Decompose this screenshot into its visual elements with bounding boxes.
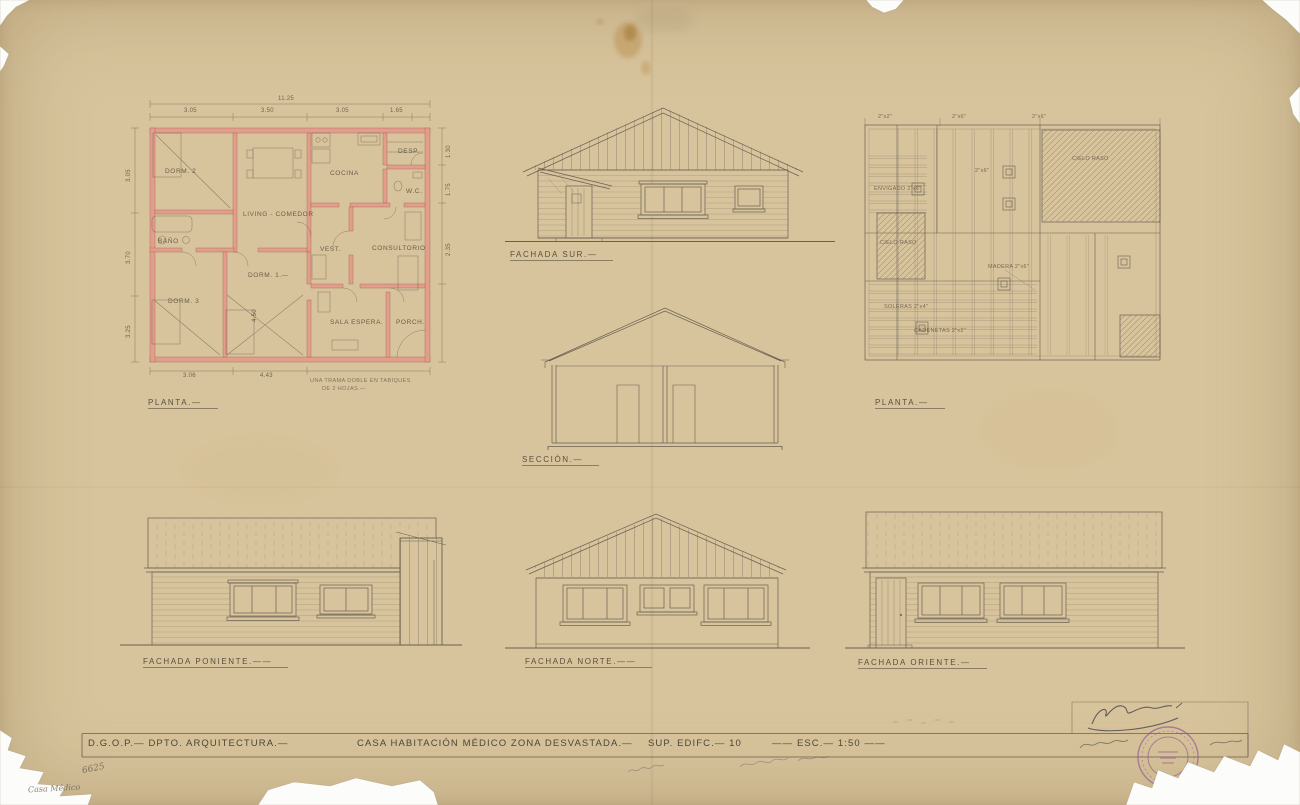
dim-l2: 3.70 (126, 251, 132, 264)
framing-cielo-raso-1: CIELO RASO (1072, 156, 1109, 162)
framing-dim-2: 2"x6" (952, 114, 966, 120)
dim-inner: 4.50 (252, 309, 258, 322)
south-elevation-drawing (505, 107, 835, 242)
room-label-desp: DESP. (398, 148, 420, 155)
north-elevation-label: FACHADA NORTE.—— (525, 657, 652, 668)
room-label-dorm1: DORM. 1.— (248, 272, 289, 279)
dim-t1: 3.05 (184, 108, 197, 114)
dim-r3: 2.35 (446, 243, 452, 256)
room-label-consultorio: CONSULTORIO (372, 245, 426, 252)
framing-cadenetas-label: CADENETAS 2"x2" (914, 328, 966, 334)
dim-t4: 1.65 (390, 108, 403, 114)
titleblock-scale: —— ESC.— 1:50 —— (772, 738, 886, 749)
titleblock-project-title: CASA HABITACIÓN MÉDICO ZONA DESVASTADA.— (357, 738, 633, 749)
titleblock-department: D.G.O.P.— DPTO. ARQUITECTURA.— (88, 738, 289, 749)
room-label-porch: PORCH. (396, 319, 425, 326)
dim-r2: 1.75 (446, 183, 452, 196)
west-elevation-drawing (120, 518, 462, 645)
framing-dim-3: 2"x6" (1032, 114, 1046, 120)
scanned-blueprint-sheet: PLANTA.— FACHADA SUR.— PLANTA.— SECCIÓN.… (0, 0, 1300, 805)
dim-t2: 3.50 (261, 108, 274, 114)
dim-total: 11.25 (278, 96, 294, 102)
dim-b1: 3.06 (183, 373, 196, 379)
plan-note-line1: UNA TRAMA DOBLE EN TABIQUES (310, 378, 411, 384)
dim-l1: 3.05 (126, 169, 132, 182)
framing-envigado-label: ENVIGADO 2"x6" (874, 186, 922, 192)
south-elevation-label: FACHADA SUR.— (510, 250, 613, 261)
framing-soleras-label: SOLERAS 2"x4" (884, 304, 928, 310)
east-elevation-drawing (845, 512, 1185, 648)
section-label: SECCIÓN.— (522, 455, 599, 466)
titleblock-surface: SUP. EDIFC.— 10 (648, 738, 742, 749)
section-drawing (541, 308, 789, 450)
room-label-dorm3: DORM. 3 (168, 298, 199, 305)
handwritten-receipt-line (1080, 740, 1242, 748)
dim-b2: 4.43 (260, 373, 273, 379)
framing-cielo-raso-2: CIELO RASO (880, 240, 917, 246)
room-label-cocina: COCINA (330, 170, 359, 177)
west-elevation-label: FACHADA PONIENTE.—— (143, 657, 288, 668)
framing-dim-1: 2"x2" (878, 114, 892, 120)
dim-r1: 1.30 (446, 145, 452, 158)
east-elevation-label: FACHADA ORIENTE.— (858, 658, 987, 669)
room-label-wc: W.C. (406, 188, 422, 195)
framing-maderas-label: MADERA 2"x6" (988, 264, 1029, 270)
north-elevation-drawing (505, 514, 810, 648)
room-label-vest: VEST. (320, 246, 341, 253)
room-label-bano: BAÑO (158, 238, 179, 245)
plan-note-line2: DE 2 HOJAS.— (322, 386, 366, 392)
floor-plan-label: PLANTA.— (148, 398, 218, 409)
room-label-living: LIVING - COMEDOR (243, 211, 314, 218)
framing-dim-4: 2"x6" (975, 168, 989, 174)
framing-plan-label: PLANTA.— (875, 398, 945, 409)
dim-t3: 3.05 (336, 108, 349, 114)
room-label-sala-espera: SALA ESPERA. (330, 319, 383, 326)
dim-l3: 3.25 (126, 325, 132, 338)
framing-plan-drawing (865, 118, 1160, 360)
room-label-dorm2: DORM. 2 (165, 168, 196, 175)
